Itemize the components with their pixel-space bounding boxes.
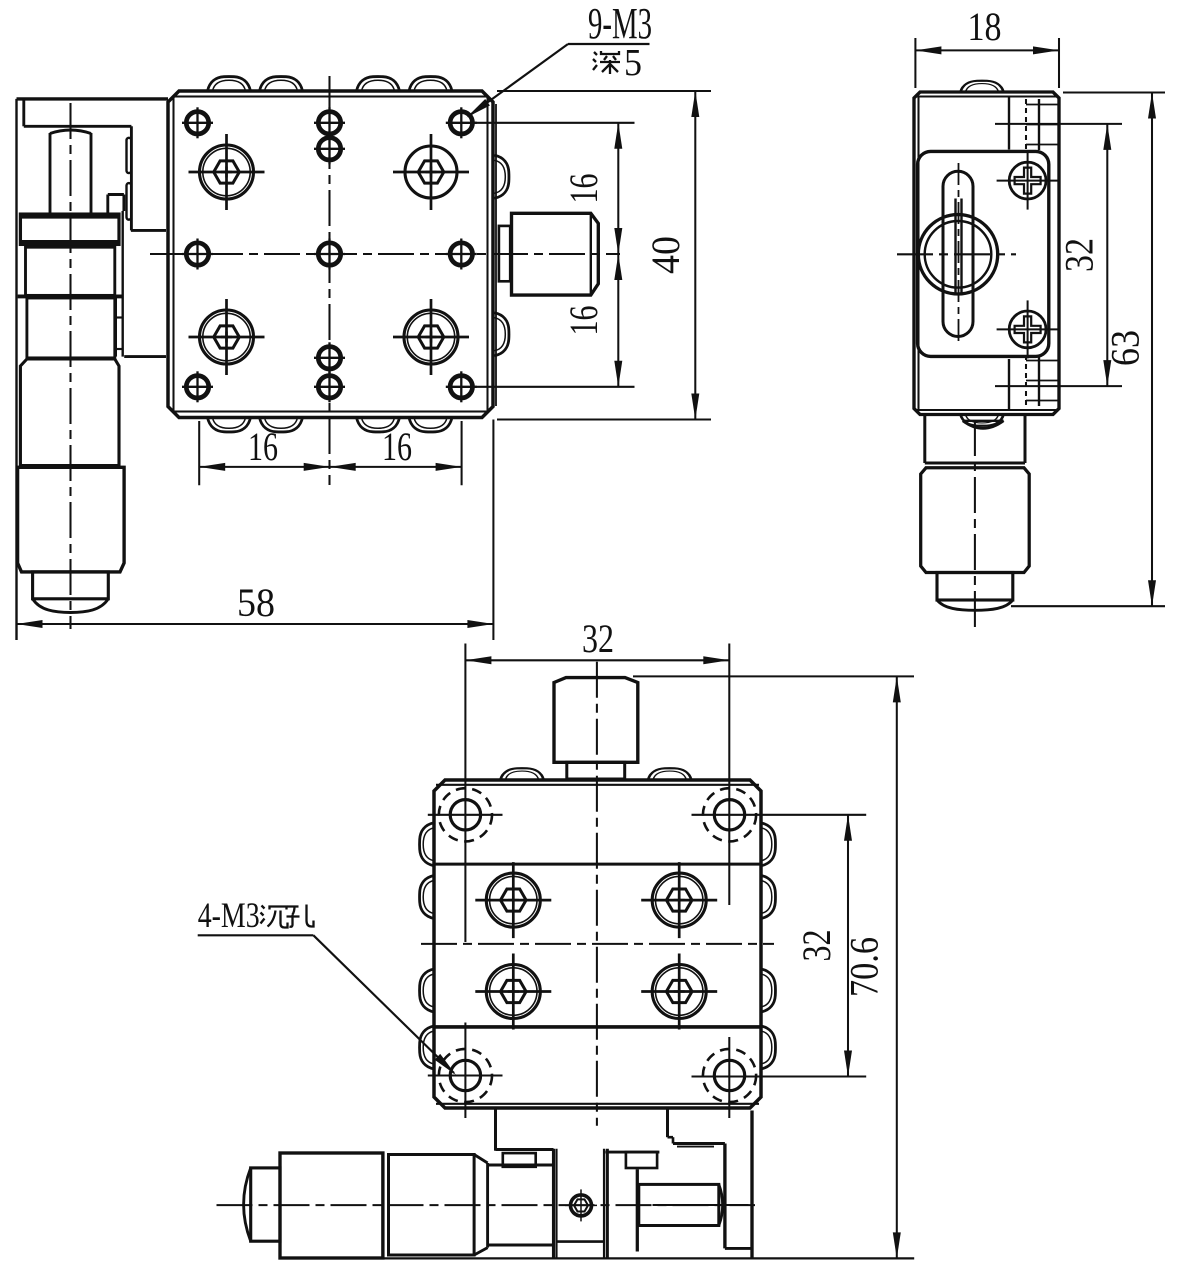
svg-text:4-M3: 4-M3 bbox=[198, 895, 260, 935]
svg-text:63: 63 bbox=[1103, 330, 1148, 366]
svg-text:32: 32 bbox=[1057, 238, 1102, 272]
svg-text:58: 58 bbox=[237, 580, 275, 625]
svg-text:16: 16 bbox=[561, 174, 606, 204]
svg-text:16: 16 bbox=[248, 424, 278, 469]
svg-text:70.6: 70.6 bbox=[842, 937, 887, 997]
svg-text:16: 16 bbox=[382, 424, 412, 469]
svg-text:18: 18 bbox=[968, 4, 1002, 49]
svg-text:32: 32 bbox=[794, 930, 839, 962]
svg-text:40: 40 bbox=[643, 236, 688, 274]
svg-text:9-M3: 9-M3 bbox=[588, 0, 652, 48]
svg-text:5: 5 bbox=[624, 42, 642, 84]
svg-text:32: 32 bbox=[582, 616, 614, 661]
svg-text:16: 16 bbox=[561, 306, 606, 336]
